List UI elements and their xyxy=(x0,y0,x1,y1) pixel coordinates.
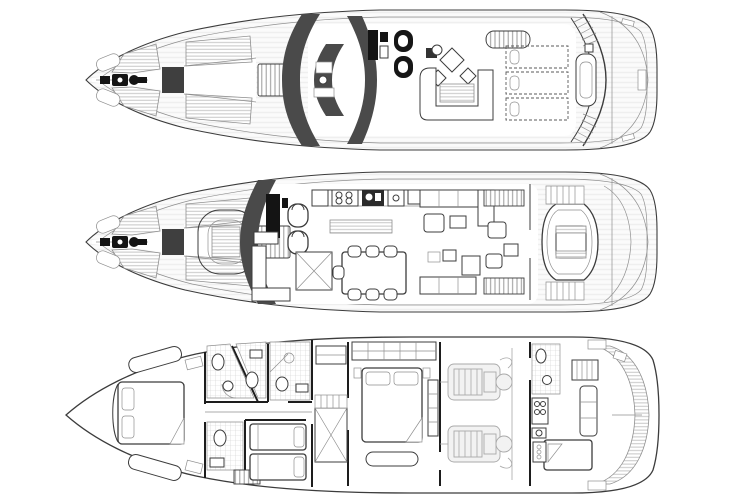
bench xyxy=(366,452,418,466)
armchair xyxy=(424,214,444,232)
sliding-door xyxy=(484,190,524,206)
main-deck xyxy=(86,172,657,312)
helm-seat xyxy=(394,56,413,78)
nightstand xyxy=(354,368,361,378)
pillow xyxy=(510,50,519,64)
chaise xyxy=(462,256,480,275)
side-table xyxy=(443,250,456,261)
coffee-table xyxy=(450,216,466,228)
crew-settee xyxy=(580,386,597,436)
dining-chair xyxy=(348,289,361,300)
sink xyxy=(250,350,262,358)
fridge xyxy=(312,190,328,206)
pillow xyxy=(122,416,134,438)
pouf xyxy=(428,252,440,262)
pillow xyxy=(510,102,519,116)
toilet xyxy=(276,377,288,391)
crew-stairs xyxy=(572,360,598,380)
side-table xyxy=(504,244,518,256)
crew-galley xyxy=(532,398,548,438)
galley-island xyxy=(330,220,392,233)
stove xyxy=(332,190,358,206)
lower-deck xyxy=(66,337,659,493)
dining-chair xyxy=(384,289,397,300)
sink xyxy=(296,384,308,392)
armchair xyxy=(488,222,506,238)
crew-table xyxy=(533,442,546,462)
pillow xyxy=(366,372,390,385)
dining-set xyxy=(333,246,406,300)
cockpit-table xyxy=(556,226,586,258)
deck-fitting xyxy=(319,76,327,84)
deck-plan-drawing xyxy=(0,0,744,496)
single-bed xyxy=(250,454,306,480)
helm-console xyxy=(368,30,378,60)
helm-seat xyxy=(288,204,308,227)
day-head xyxy=(270,342,310,400)
toilet xyxy=(214,430,226,446)
wet-bar-grill xyxy=(486,31,530,48)
staircase xyxy=(315,346,347,462)
sink xyxy=(543,376,552,385)
crew-bathroom xyxy=(532,344,560,394)
pillow xyxy=(394,372,418,385)
pillow xyxy=(294,427,304,447)
sliding-door xyxy=(484,278,524,294)
master-bed xyxy=(362,368,422,442)
step xyxy=(588,481,606,490)
helm-seat xyxy=(288,231,308,254)
pillow xyxy=(510,76,519,90)
step xyxy=(588,340,606,349)
pillow xyxy=(122,388,134,410)
helm-seat xyxy=(394,30,413,52)
yacht-deck-plans xyxy=(0,0,744,496)
pillow xyxy=(294,457,304,477)
crew-berth xyxy=(544,440,592,470)
stool xyxy=(432,45,442,55)
staircase-to-lower-deck xyxy=(296,252,332,290)
dining-chair xyxy=(333,266,344,279)
dining-chair xyxy=(348,246,361,257)
dining-chair xyxy=(366,289,379,300)
single-bed xyxy=(250,424,306,450)
dresser xyxy=(428,380,438,436)
sink xyxy=(223,381,233,391)
dining-chair xyxy=(384,246,397,257)
sink xyxy=(362,190,384,206)
dining-chair xyxy=(366,246,379,257)
seating-table xyxy=(440,84,474,102)
nightstand xyxy=(423,368,430,378)
wardrobe xyxy=(352,342,436,360)
toilet xyxy=(536,349,546,363)
sofa xyxy=(420,190,478,207)
armchair xyxy=(486,254,502,268)
seating-table xyxy=(212,227,240,257)
sofa xyxy=(420,277,476,294)
sink xyxy=(210,458,224,467)
toilet xyxy=(246,372,258,388)
toilet xyxy=(212,354,224,370)
flybridge-deck xyxy=(86,10,657,150)
helm-console xyxy=(266,194,280,238)
dining-table xyxy=(342,252,406,294)
vip-bed xyxy=(113,382,184,444)
